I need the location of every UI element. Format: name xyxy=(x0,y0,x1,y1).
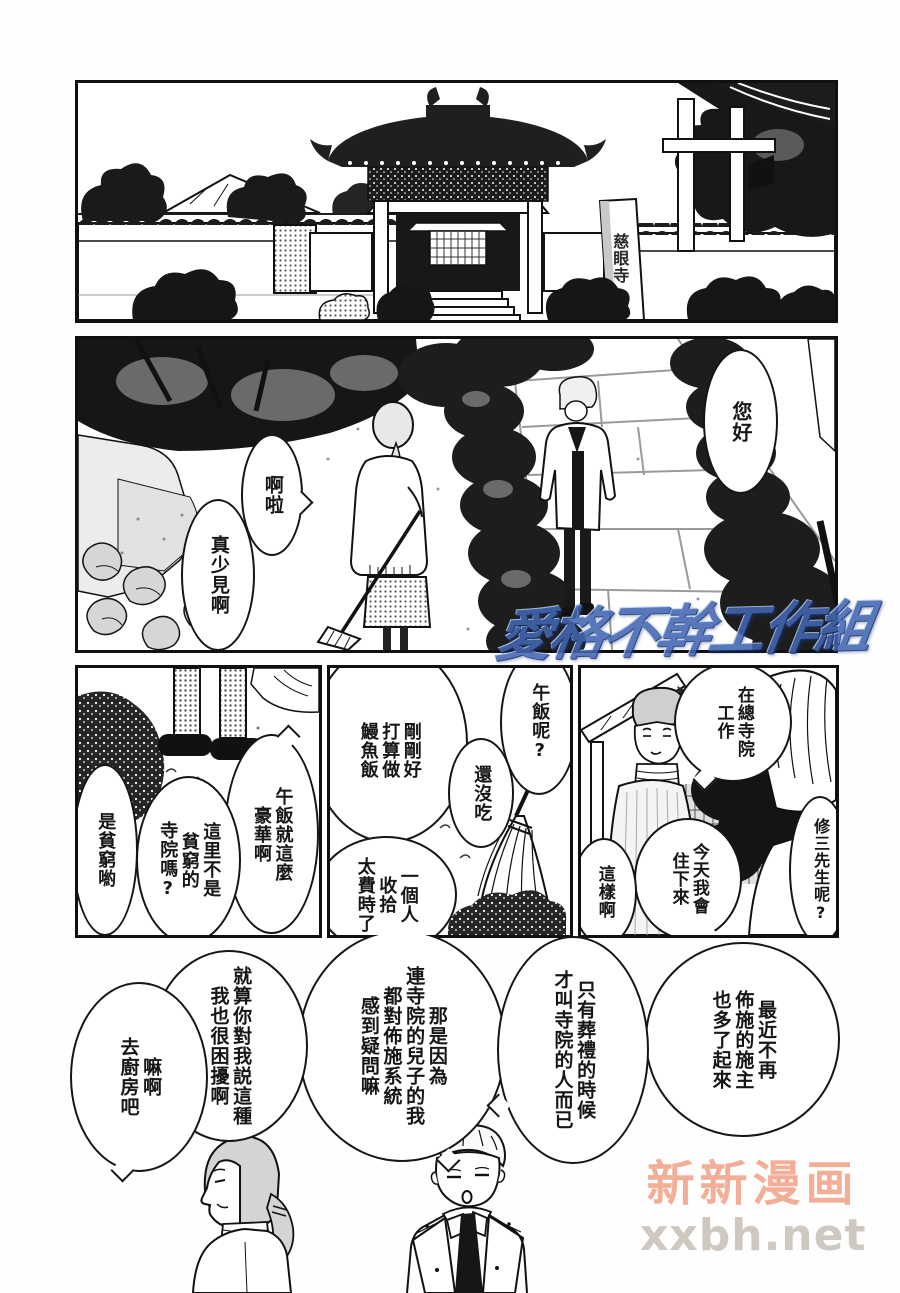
bubble-text: 最近不再 xyxy=(754,990,776,1090)
bubble-text: 也多了起來 xyxy=(709,990,731,1090)
bubble-text: 在總寺院 xyxy=(734,686,753,758)
bubble-text: 您好 xyxy=(729,401,752,443)
bubble-text: 只有葬禮的時候 xyxy=(574,970,596,1130)
bubble-text: 才叫寺院的人而已 xyxy=(551,970,573,1130)
character-old-woman xyxy=(193,1136,293,1293)
bubble-text: 佈施的施主 xyxy=(732,990,754,1090)
site-watermark-url: xxbh.net xyxy=(640,1214,865,1258)
bubble-text: 太費時了 xyxy=(354,857,375,933)
panel-lunch-right: 在總寺院 工作 修三先生呢? 今天我會 住下來 這樣啊 xyxy=(578,665,839,938)
bubble-text: 嘛啊 xyxy=(140,1037,162,1117)
bubble-text: 這里不是 xyxy=(200,821,221,900)
bubble-text: 還沒吃 xyxy=(471,765,492,822)
bubble-text: 感到疑問嘛 xyxy=(357,966,379,1126)
speech-bubble-not-yet: 還沒吃 xyxy=(448,738,514,848)
panel-temple-gate: 慈眼寺 xyxy=(75,80,838,323)
speech-bubble-is-poor: 是貧窮喲 xyxy=(75,764,138,936)
bubble-text: 打算做 xyxy=(379,722,400,779)
site-watermark-name: 新新漫画 xyxy=(640,1160,865,1208)
panel-lunch-middle: 剛剛好 打算做 鰻魚飯 午飯呢? 還沒吃 一個人 收拾 太費時了 xyxy=(327,665,573,938)
bubble-text: 收拾 xyxy=(376,857,397,933)
speech-bubble-stay: 今天我會 住下來 xyxy=(634,818,742,938)
bubble-text: 這樣啊 xyxy=(594,865,613,919)
speech-bubble-donors: 最近不再 佈施的施主 也多了起來 xyxy=(645,942,840,1137)
temple-sign-text: 慈眼寺 xyxy=(610,215,628,301)
bubble-text: 寺院嗎? xyxy=(157,821,178,900)
speech-bubble-poor-temple: 這里不是 貧窮的 寺院嗎? xyxy=(136,776,241,938)
speech-bubble-rare: 真少見啊 xyxy=(181,499,255,651)
speech-bubble-hello: 您好 xyxy=(703,349,778,494)
bubble-text: 剛剛好 xyxy=(400,722,421,779)
bubble-text: 貧窮的 xyxy=(178,821,199,900)
speech-bubble-doubt: 那是因為 連寺院的兒子的我 都對佈施系統 感到疑問嘛 xyxy=(298,930,506,1162)
bubble-tail xyxy=(110,1158,134,1182)
bubble-text: 就算你對我説這種 xyxy=(230,966,252,1126)
bubble-text: 一個人 xyxy=(397,857,418,933)
panel-lunch-left: 午飯就這麼 豪華啊 這里不是 貧窮的 寺院嗎? 是貧窮喲 xyxy=(75,665,322,938)
manga-page: 慈眼寺 xyxy=(0,0,900,1293)
site-watermark: 新新漫画 xxbh.net xyxy=(640,1160,865,1258)
bubble-text: 工作 xyxy=(713,686,732,758)
bubble-text: 鰻魚飯 xyxy=(357,722,378,779)
speech-bubble-head-temple: 在總寺院 工作 xyxy=(674,665,792,782)
bubble-text: 真少見啊 xyxy=(207,535,229,615)
speech-bubble-funeral: 只有葬禮的時候 才叫寺院的人而已 xyxy=(497,936,649,1164)
scanlation-group-watermark: 愛格不幹工作組 xyxy=(491,581,900,674)
bubble-text: 連寺院的兒子的我 xyxy=(403,966,425,1126)
bubble-text: 都對佈施系統 xyxy=(380,966,402,1126)
bubble-text: 我也很困擾啊 xyxy=(207,966,229,1126)
bubble-text: 今天我會 xyxy=(689,843,708,915)
bubble-text: 是貧窮喲 xyxy=(95,812,116,888)
bubble-text: 修三先生呢? xyxy=(811,818,829,923)
bubble-text: 那是因為 xyxy=(425,966,447,1126)
temple-gate-art xyxy=(78,83,835,320)
bubble-text: 住下來 xyxy=(668,843,687,915)
speech-bubble-kitchen: 嘛啊 去廚房吧 xyxy=(70,982,208,1172)
bubble-text: 去廚房吧 xyxy=(117,1037,139,1117)
bubble-text: 午飯就這麼 xyxy=(272,787,293,882)
bubble-text: 豪華啊 xyxy=(250,787,271,882)
bubble-text: 午飯呢? xyxy=(529,683,550,762)
bubble-text: 啊啦 xyxy=(261,475,283,515)
